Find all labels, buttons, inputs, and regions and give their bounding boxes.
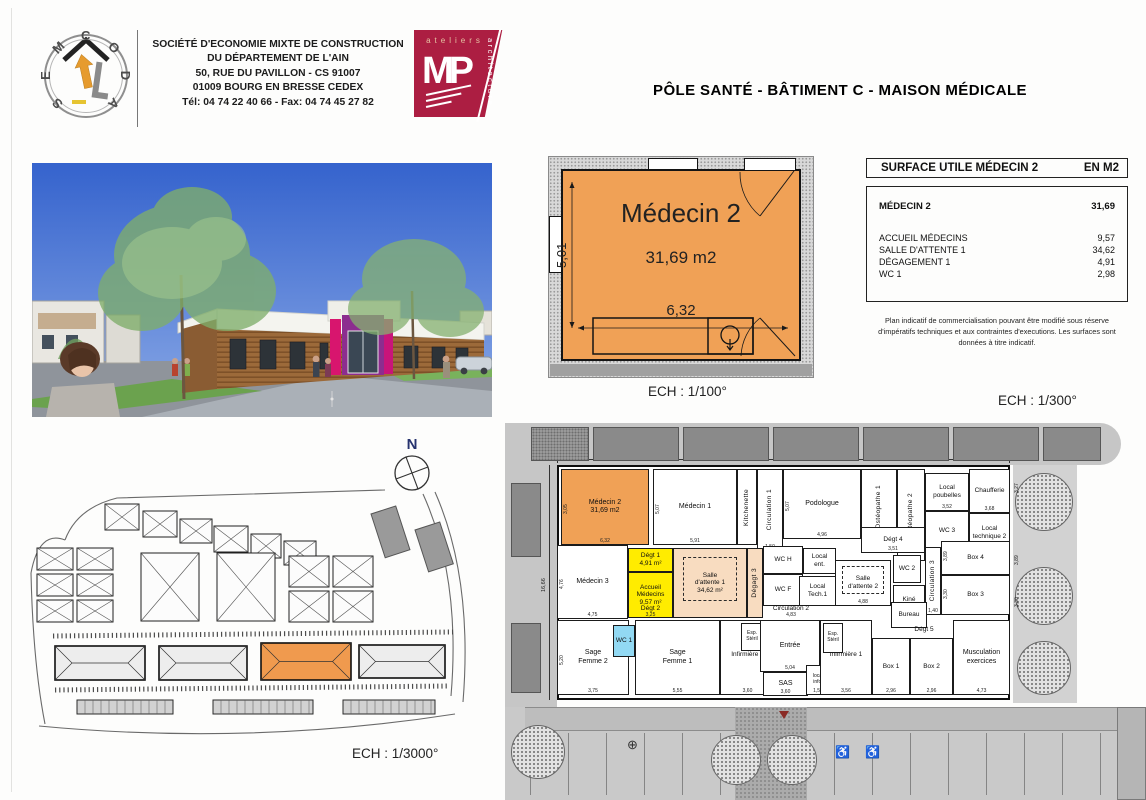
scale-label-1-3000: ECH : 1/3000° bbox=[352, 746, 438, 761]
room-medecin-1: Médecin 15,915,07 bbox=[653, 469, 737, 545]
scale-label-1-100: ECH : 1/100° bbox=[648, 384, 727, 399]
north-label: N bbox=[388, 436, 436, 453]
canopy-panel bbox=[531, 427, 589, 461]
drawing-sheet: SEMCODA SOCIÉTÉ D'ECONOMIE MIXTE DE CONS… bbox=[0, 0, 1146, 800]
surface-table-body: MÉDECIN 2 31,69 ACCUEIL MÉDECINS9,57SALL… bbox=[866, 186, 1128, 302]
room-dimension: 2,96 bbox=[873, 688, 909, 694]
room-dimension-vertical: 3,89 bbox=[943, 551, 949, 561]
canopy-panel bbox=[953, 427, 1039, 461]
room-label: WC 1 bbox=[616, 637, 632, 645]
room-dimension: 5,91 bbox=[654, 538, 736, 544]
room-label: Ostéopathe 1 bbox=[875, 485, 883, 529]
room-label: Dégt 1 4,91 m² bbox=[639, 552, 661, 567]
semcoda-letter: C bbox=[81, 28, 90, 43]
room-label: WC 2 bbox=[899, 565, 915, 573]
surface-row-label: ACCUEIL MÉDECINS bbox=[879, 232, 968, 244]
room-label: Box 4 bbox=[967, 554, 984, 562]
room-circulation-1: Circulation 11,50 bbox=[757, 469, 783, 551]
room-label: Chaufferie bbox=[975, 487, 1005, 495]
canopy-panel bbox=[593, 427, 679, 461]
surface-row-label: WC 1 bbox=[879, 268, 902, 280]
room-dimension-vertical: 4,76 bbox=[559, 579, 565, 589]
surface-table-note: Plan indicatif de commercialisation pouv… bbox=[866, 316, 1128, 349]
room-wc-2: WC 2 bbox=[893, 555, 921, 583]
room-dimension: 3,25 bbox=[628, 612, 673, 618]
room-dimension: 4,73 bbox=[954, 688, 1009, 694]
room-medecin-2: Médecin 2 31,69 m26,323,05 bbox=[561, 469, 649, 545]
tree-icon bbox=[1015, 567, 1073, 625]
room-label: Local technique 2 bbox=[973, 525, 1007, 540]
handicap-icon: ♿ bbox=[835, 745, 850, 759]
scale-label-1-300: ECH : 1/300° bbox=[998, 393, 1077, 408]
company-line: SOCIÉTÉ D'ECONOMIE MIXTE DE CONSTRUCTION bbox=[142, 38, 414, 52]
room-kitchenette: Kitchenette bbox=[737, 469, 757, 545]
side-dimension: 3,89 bbox=[1014, 555, 1020, 565]
entrance-marker bbox=[779, 711, 789, 719]
page-title: PÔLE SANTÉ - BÂTIMENT C - MAISON MÉDICAL… bbox=[560, 82, 1120, 99]
site-slab bbox=[415, 522, 453, 572]
room-label: Local poubelles bbox=[933, 484, 961, 499]
detail-room-area: 31,69 m2 bbox=[548, 248, 814, 268]
surface-row: SALLE D'ATTENTE 134,62 bbox=[879, 244, 1115, 256]
surface-row-value: 34,62 bbox=[1092, 244, 1115, 256]
front-walkway bbox=[525, 707, 1117, 731]
side-dimension: 3,27 bbox=[1014, 483, 1020, 493]
room-dimension: 3,52 bbox=[926, 504, 968, 510]
building-3d-rendering bbox=[32, 163, 492, 417]
tree-icon bbox=[711, 735, 761, 785]
tree-icon bbox=[1015, 473, 1073, 531]
room-label: Dégt 4 bbox=[883, 536, 902, 544]
room-local-poubelles: Local poubelles3,52 bbox=[925, 473, 969, 511]
surface-row-label: DÉGAGEMENT 1 bbox=[879, 256, 950, 268]
detail-room-height-dim: 5,01 bbox=[554, 243, 569, 268]
room-label: Sage Femme 1 bbox=[663, 649, 693, 666]
room-medecin-3: Médecin 34,754,76 bbox=[557, 545, 628, 619]
site-garage-row bbox=[213, 700, 313, 714]
site-plan-svg bbox=[25, 478, 470, 743]
room-podologue: Podologue4,965,07 bbox=[783, 469, 861, 539]
window-top bbox=[648, 158, 698, 170]
mp-architecture-logo: ateliers architecture MP bbox=[414, 30, 511, 117]
room-musculation: Musculation exercices4,73 bbox=[953, 620, 1010, 695]
room-label: WC H bbox=[774, 556, 791, 564]
room-label: Entrée bbox=[780, 642, 801, 650]
sheet-edge-line bbox=[11, 8, 12, 792]
room-label: Box 3 bbox=[967, 591, 984, 599]
room-label: Médecin 1 bbox=[679, 503, 711, 511]
room-label: Circulation 3 bbox=[929, 560, 937, 601]
parking-plate-right bbox=[1117, 707, 1146, 800]
room-dimension-vertical: 5,07 bbox=[655, 505, 661, 515]
room-sage-femme-1: Sage Femme 15,55 bbox=[635, 620, 720, 695]
room-dimension: 3,56 bbox=[821, 688, 871, 694]
room-label: WC 3 bbox=[939, 527, 955, 535]
canopy-panel bbox=[863, 427, 949, 461]
surface-row-label: MÉDECIN 2 bbox=[879, 201, 931, 214]
detail-plan-bottom-wall bbox=[550, 364, 812, 376]
surface-row-value: 31,69 bbox=[1091, 201, 1115, 214]
room-label: Infirmière 2 bbox=[731, 651, 764, 659]
side-dimension: 3,30 bbox=[1014, 597, 1020, 607]
room-wc-h: WC H bbox=[763, 546, 803, 574]
room-dimension-vertical: 3,30 bbox=[943, 589, 949, 599]
surface-row-value: 4,91 bbox=[1097, 256, 1115, 268]
canopy-panel bbox=[773, 427, 859, 461]
room-dimension: 4,96 bbox=[784, 532, 860, 538]
room-box-3: Box 33,30 bbox=[941, 575, 1010, 615]
room-label: Musculation exercices bbox=[963, 649, 1000, 666]
semcoda-logo: SEMCODA bbox=[36, 26, 136, 126]
room-label: Local Tech.1 bbox=[808, 583, 827, 598]
site-garage-row bbox=[343, 700, 435, 714]
surface-table-title: SURFACE UTILE MÉDECIN 2 bbox=[881, 162, 1038, 174]
room-local-ent: Local ent. bbox=[803, 548, 836, 574]
room-dimension: 4,88 bbox=[836, 599, 890, 605]
detail-room-name: Médecin 2 bbox=[548, 198, 814, 229]
room-label: Podologue bbox=[805, 500, 838, 508]
room-label: Bureau bbox=[899, 611, 920, 619]
room-label: WC F bbox=[775, 586, 792, 594]
site-parking-row bbox=[55, 686, 449, 690]
company-line: 01009 BOURG EN BRESSE CEDEX bbox=[142, 81, 414, 95]
handicap-icon: ♿ bbox=[865, 745, 880, 759]
canopy-panel bbox=[683, 427, 769, 461]
surface-row: DÉGAGEMENT 14,91 bbox=[879, 256, 1115, 268]
detail-plan-medecin-2: Médecin 2 31,69 m2 6,32 5,01 bbox=[548, 156, 814, 378]
room-label: Sage Femme 2 bbox=[578, 649, 608, 666]
parking-spaces bbox=[530, 733, 1115, 795]
surface-row: ACCUEIL MÉDECINS9,57 bbox=[879, 232, 1115, 244]
company-line: DU DÉPARTEMENT DE L'AIN bbox=[142, 52, 414, 66]
room-label: Dégagt 3 bbox=[751, 568, 759, 598]
tree-icon bbox=[511, 725, 565, 779]
surface-row: WC 12,98 bbox=[879, 268, 1115, 280]
company-line: Tél: 04 74 22 40 66 - Fax: 04 74 45 27 8… bbox=[142, 96, 414, 110]
mp-logo-word-architecture: architecture bbox=[486, 38, 495, 111]
company-info: SOCIÉTÉ D'ECONOMIE MIXTE DE CONSTRUCTION… bbox=[142, 38, 414, 110]
room-salle-attente-1: Salle d'attente 1 34,62 m² bbox=[673, 548, 747, 618]
detail-room-width-dim: 6,32 bbox=[548, 302, 814, 319]
room-dimension: 4,75 bbox=[558, 612, 627, 618]
room-dimension: 4,83 bbox=[745, 612, 837, 618]
room-dimension-vertical: 5,07 bbox=[785, 501, 791, 511]
room-dimension: 3,51 bbox=[862, 546, 924, 552]
semcoda-letter: E bbox=[38, 71, 53, 80]
room-box-2: Box 22,96 bbox=[910, 638, 953, 695]
room-label: SAS bbox=[778, 680, 792, 688]
room-dimension: 3,68 bbox=[970, 506, 1009, 512]
surface-row-value: 9,57 bbox=[1097, 232, 1115, 244]
tree-icon bbox=[767, 735, 817, 785]
room-sas: SAS3,60 bbox=[763, 672, 808, 696]
floor-plan: ⊕ ♿ ♿ 34,56 16,66 3,273,893,30Médecin 2 … bbox=[505, 415, 1146, 800]
room-circulation-3: Circulation 31,40 bbox=[925, 547, 941, 615]
render-3d-graphic bbox=[32, 163, 492, 417]
room-label: Box 2 bbox=[923, 663, 940, 671]
dimension-left: 16,66 bbox=[549, 465, 550, 700]
room-label: Salle d'attente 1 34,62 m² bbox=[695, 572, 725, 595]
room-label: Dégt 5 bbox=[914, 626, 933, 634]
room-salle-attente-2: Salle d'attente 24,88 bbox=[835, 560, 891, 606]
room-dimension-vertical: 5,20 bbox=[559, 655, 565, 665]
room-dimension: 6,32 bbox=[562, 538, 648, 544]
surface-table: SURFACE UTILE MÉDECIN 2 EN M2 MÉDECIN 2 … bbox=[866, 158, 1128, 349]
room-degt-4: Dégt 43,51 bbox=[861, 527, 925, 553]
side-panel bbox=[511, 623, 541, 693]
room-label: Médecin 2 31,69 m2 bbox=[589, 499, 621, 516]
room-dimension: 1,40 bbox=[926, 608, 940, 614]
room-dimension: 2,96 bbox=[911, 688, 952, 694]
company-line: 50, RUE DU PAVILLON - CS 91007 bbox=[142, 67, 414, 81]
side-panel bbox=[511, 483, 541, 557]
room-circulation-2: Circulation 24,83 bbox=[745, 600, 837, 618]
tree-icon bbox=[1017, 641, 1071, 695]
semcoda-letter: D bbox=[118, 71, 133, 80]
site-road bbox=[39, 714, 455, 734]
surface-table-unit: EN M2 bbox=[1084, 162, 1119, 174]
room-label: Médecin 3 bbox=[576, 578, 608, 586]
roundabout-icon: ⊕ bbox=[627, 737, 638, 753]
dimension-left-value: 16,66 bbox=[541, 576, 547, 594]
room-chaufferie: Chaufferie3,68 bbox=[969, 469, 1010, 513]
room-dimension-vertical: 3,05 bbox=[563, 505, 569, 515]
room-dimension: 5,55 bbox=[636, 688, 719, 694]
room-label: Local ent. bbox=[812, 553, 828, 568]
site-slab bbox=[371, 506, 410, 558]
room-label: Esp. Stéril bbox=[746, 631, 757, 643]
surface-row-value: 2,98 bbox=[1097, 268, 1115, 280]
room-esp-steril-2: Esp. Stéril bbox=[823, 623, 843, 653]
room-degt-2: Dégt 23,25 bbox=[628, 600, 673, 618]
room-degt-5: Dégt 5 bbox=[903, 622, 945, 638]
canopy-panel bbox=[1043, 427, 1101, 461]
room-label: Esp. Stéril bbox=[827, 632, 838, 644]
room-dimension: 3,75 bbox=[558, 688, 628, 694]
header-divider bbox=[137, 30, 138, 127]
room-box-1: Box 12,96 bbox=[872, 638, 910, 695]
room-label: Circulation 1 bbox=[766, 489, 774, 530]
surface-row-label: SALLE D'ATTENTE 1 bbox=[879, 244, 966, 256]
door-gap-top bbox=[744, 158, 796, 171]
room-label: Box 1 bbox=[883, 663, 900, 671]
room-dimension: 3,60 bbox=[764, 689, 807, 695]
room-label: Salle d'attente 2 bbox=[848, 575, 878, 590]
room-box-4: Box 43,89 bbox=[941, 541, 1010, 575]
surface-table-header: SURFACE UTILE MÉDECIN 2 EN M2 bbox=[866, 158, 1128, 178]
room-degt-1: Dégt 1 4,91 m² bbox=[628, 548, 673, 572]
mp-logo-word-ateliers: ateliers bbox=[424, 36, 486, 45]
room-label: Kitchenette bbox=[743, 489, 751, 526]
surface-row-main: MÉDECIN 2 31,69 bbox=[879, 201, 1115, 214]
surface-rows: ACCUEIL MÉDECINS9,57SALLE D'ATTENTE 134,… bbox=[879, 232, 1115, 281]
room-wc-1: WC 1 bbox=[613, 625, 635, 657]
site-parking-row bbox=[53, 632, 453, 636]
